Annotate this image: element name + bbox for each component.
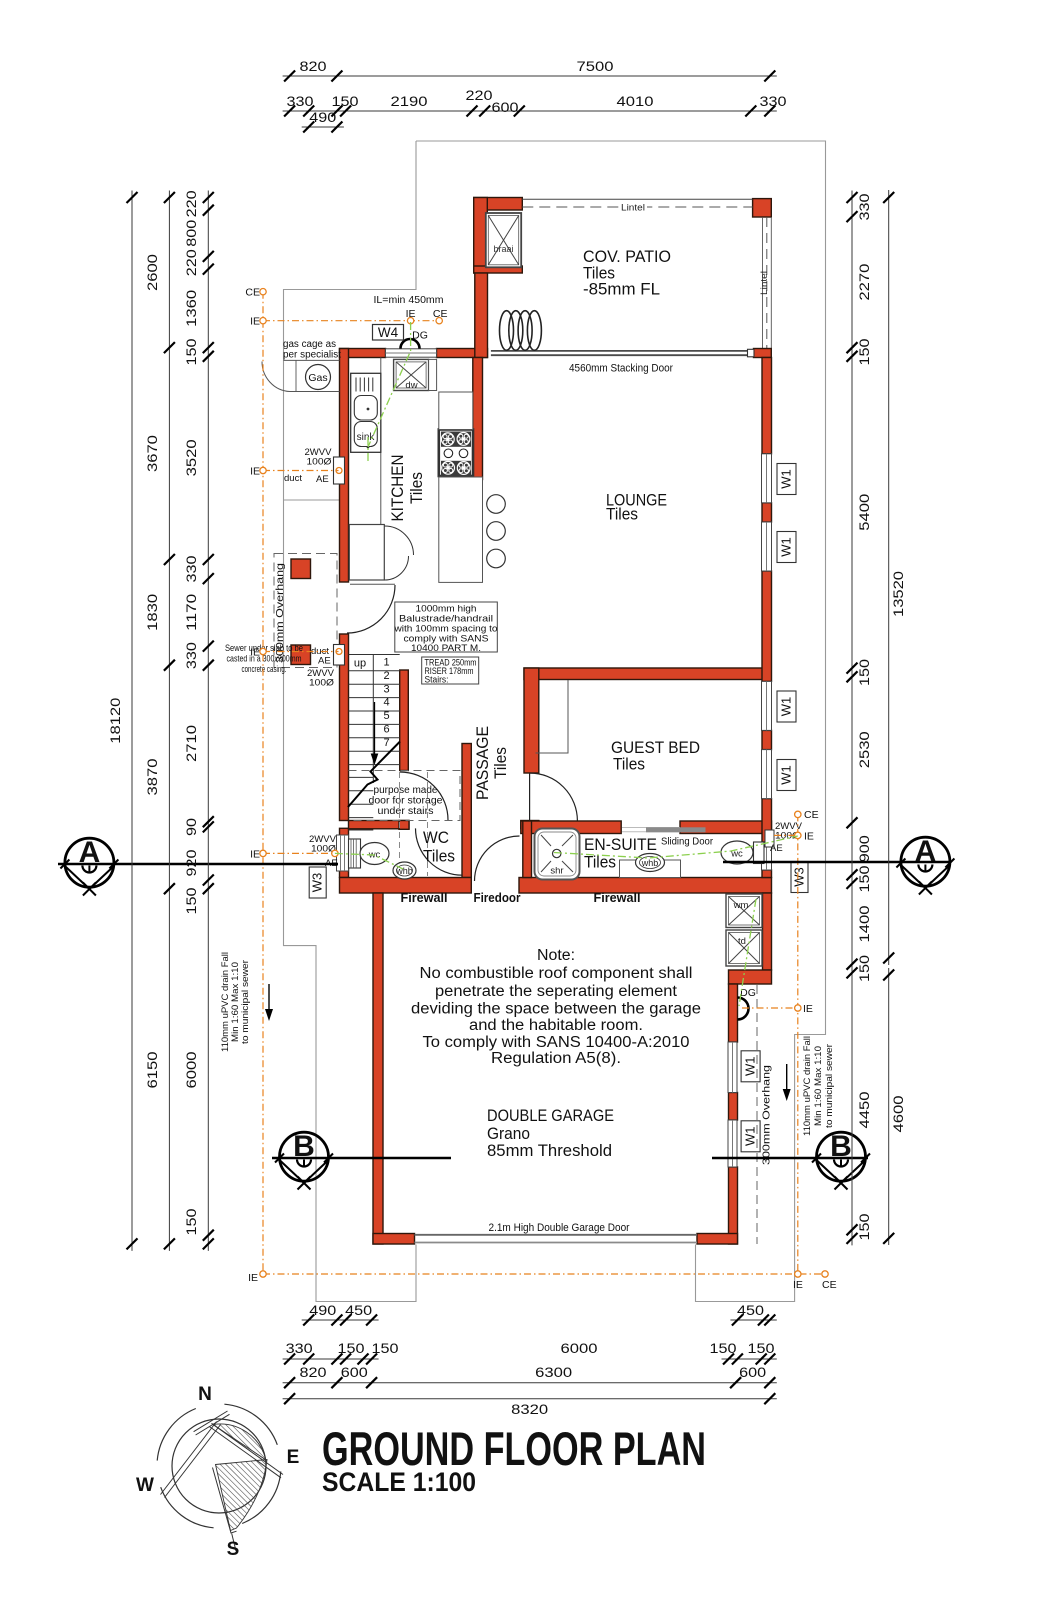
svg-text:100Ø: 100Ø [309,678,335,689]
svg-text:450: 450 [345,1303,372,1318]
svg-text:purpose made: purpose made [374,785,438,796]
svg-text:330: 330 [760,94,787,109]
svg-text:220: 220 [184,249,199,276]
svg-text:Stairs:: Stairs: [425,675,449,685]
svg-text:per specialist: per specialist [283,350,341,361]
svg-text:Regulation A5(8).: Regulation A5(8). [491,1050,621,1067]
svg-text:820: 820 [300,1365,327,1380]
svg-text:W1: W1 [743,1127,758,1147]
svg-text:2.1m High Double Garage Door: 2.1m High Double Garage Door [489,1222,630,1234]
svg-text:150: 150 [184,338,199,365]
svg-text:N: N [198,1384,212,1405]
svg-text:COV. PATIO: COV. PATIO [583,248,671,266]
svg-text:7500: 7500 [577,59,614,74]
svg-text:490: 490 [309,1303,336,1318]
svg-text:2: 2 [383,670,389,682]
svg-text:300mm Overhang: 300mm Overhang [761,1065,773,1165]
svg-text:whb: whb [641,858,659,868]
svg-text:braai: braai [493,244,513,254]
svg-text:150: 150 [372,1341,399,1356]
svg-text:Grano: Grano [487,1125,530,1143]
svg-text:Lintel: Lintel [621,203,645,214]
svg-text:Firewall: Firewall [401,891,448,905]
svg-text:6150: 6150 [145,1052,160,1089]
svg-text:Tiles: Tiles [408,472,426,504]
svg-text:Lintel: Lintel [759,271,769,295]
svg-text:WC: WC [423,829,449,847]
svg-text:1: 1 [383,657,389,669]
svg-text:150: 150 [184,888,199,915]
svg-text:B: B [293,1130,315,1163]
svg-text:Sliding Door: Sliding Door [661,836,713,848]
svg-text:Tiles: Tiles [613,756,645,774]
svg-text:IE: IE [250,647,260,659]
svg-text:3670: 3670 [145,435,160,472]
svg-text:CE: CE [804,809,819,821]
svg-text:IE: IE [250,316,260,328]
svg-text:600: 600 [739,1365,766,1380]
svg-text:330: 330 [184,556,199,583]
svg-text:td: td [738,936,746,947]
svg-text:IE: IE [793,1279,803,1291]
svg-text:W1: W1 [743,1057,758,1077]
svg-text:Tiles: Tiles [423,848,455,866]
svg-text:6000: 6000 [184,1052,199,1089]
svg-text:W3: W3 [310,873,325,893]
svg-text:920: 920 [184,850,199,877]
svg-text:90: 90 [184,818,199,836]
svg-text:gas cage as: gas cage as [283,339,336,350]
svg-text:150: 150 [857,955,872,982]
svg-text:18120: 18120 [108,698,123,744]
svg-text:GUEST BED: GUEST BED [611,739,700,757]
svg-text:3: 3 [383,683,389,695]
svg-text:AE: AE [316,474,329,485]
svg-text:4010: 4010 [617,94,654,109]
svg-text:2710: 2710 [184,725,199,762]
svg-text:-85mm FL: -85mm FL [583,281,660,299]
svg-text:150: 150 [857,866,872,893]
svg-text:450: 450 [737,1303,764,1318]
svg-text:3870: 3870 [145,758,160,795]
svg-text:7: 7 [383,737,389,749]
svg-text:W1: W1 [779,469,794,489]
svg-text:to municipal sewer: to municipal sewer [240,960,251,1044]
svg-text:1170: 1170 [184,594,199,631]
svg-text:to municipal sewer: to municipal sewer [824,1044,835,1128]
svg-text:CE: CE [822,1279,837,1291]
svg-text:Note:: Note: [537,947,575,964]
svg-text:up: up [354,658,366,670]
svg-text:820: 820 [300,59,327,74]
svg-text:5: 5 [383,710,389,722]
svg-text:AE: AE [318,656,331,667]
svg-text:under stairs: under stairs [378,806,434,817]
svg-text:330: 330 [857,194,872,221]
svg-text:Min 1:60 Max 1:10: Min 1:60 Max 1:10 [813,1046,824,1126]
svg-text:4: 4 [383,697,389,709]
svg-text:150: 150 [710,1341,737,1356]
svg-text:IE: IE [250,849,260,861]
svg-text:150: 150 [332,94,359,109]
svg-text:door for storage: door for storage [369,796,443,807]
svg-text:W1: W1 [779,697,794,717]
svg-text:2270: 2270 [857,264,872,301]
svg-text:No combustible roof component: No combustible roof component shall [420,965,693,982]
svg-text:1830: 1830 [145,594,160,631]
svg-text:W4: W4 [378,325,399,340]
svg-text:Firewall: Firewall [594,891,641,905]
svg-text:duct: duct [284,473,302,484]
svg-text:B: B [830,1130,852,1163]
svg-text:concrete casing.: concrete casing. [242,664,287,675]
svg-text:penetrate the seperating eleme: penetrate the seperating element [435,983,678,1000]
svg-text:10400 PART M.: 10400 PART M. [411,643,481,654]
svg-text:110mm uPVC drain Fall: 110mm uPVC drain Fall [802,1036,813,1136]
svg-text:330: 330 [286,1341,313,1356]
svg-text:1360: 1360 [184,290,199,327]
svg-text:shr: shr [550,866,563,877]
svg-text:150: 150 [857,659,872,686]
svg-text:IE: IE [406,308,416,320]
svg-text:4450: 4450 [857,1092,872,1129]
svg-text:800: 800 [184,220,199,247]
svg-text:5400: 5400 [857,494,872,531]
svg-text:330: 330 [184,642,199,669]
svg-text:Tiles: Tiles [606,506,638,524]
svg-text:A: A [79,836,101,869]
svg-text:490: 490 [309,110,336,125]
svg-text:4600: 4600 [891,1096,906,1133]
svg-text:IE: IE [803,1003,813,1015]
svg-text:W1: W1 [779,537,794,557]
svg-text:Tiles: Tiles [584,854,616,872]
svg-text:KITCHEN: KITCHEN [389,455,407,522]
svg-text:whb: whb [395,866,413,876]
svg-text:CE: CE [245,287,260,299]
svg-text:150: 150 [857,1214,872,1241]
svg-text:85mm Threshold: 85mm Threshold [487,1142,612,1160]
svg-text:Tiles: Tiles [492,747,510,779]
svg-text:W3: W3 [792,867,807,887]
svg-text:S: S [227,1539,240,1560]
svg-text:IE: IE [804,831,814,843]
svg-text:2600: 2600 [145,254,160,291]
svg-text:150: 150 [748,1341,775,1356]
svg-text:2530: 2530 [857,731,872,768]
svg-text:W1: W1 [779,765,794,785]
svg-text:A: A [915,835,937,868]
svg-text:Gas: Gas [308,372,327,384]
svg-text:150: 150 [857,339,872,366]
svg-text:100Ø: 100Ø [307,457,333,468]
svg-text:6000: 6000 [561,1341,598,1356]
svg-text:and the habitable room.: and the habitable room. [469,1017,643,1034]
svg-text:DG: DG [740,987,756,999]
svg-text:deviding the space between the: deviding the space between the garage [411,1001,701,1018]
svg-text:wm: wm [733,900,749,911]
svg-text:PASSAGE: PASSAGE [474,726,492,800]
svg-text:900: 900 [857,835,872,862]
svg-text:DG: DG [412,330,428,342]
svg-text:150: 150 [338,1341,365,1356]
svg-text:Firedoor: Firedoor [474,891,521,905]
svg-text:SCALE 1:100: SCALE 1:100 [322,1467,476,1497]
svg-text:dw: dw [405,380,417,391]
svg-text:AE: AE [770,843,783,854]
svg-text:CE: CE [433,308,448,320]
svg-text:DOUBLE GARAGE: DOUBLE GARAGE [487,1107,614,1125]
svg-text:220: 220 [184,190,199,217]
svg-text:To comply with SANS 10400-A:20: To comply with SANS 10400-A:2010 [423,1034,690,1051]
svg-text:E: E [287,1447,300,1468]
svg-text:220: 220 [466,88,493,103]
svg-text:1400: 1400 [857,906,872,943]
svg-text:4560mm Stacking Door: 4560mm Stacking Door [569,363,673,375]
svg-text:330: 330 [287,94,314,109]
svg-text:600: 600 [492,100,519,115]
svg-text:2190: 2190 [391,94,428,109]
svg-text:6300: 6300 [535,1365,572,1380]
svg-text:IL=min 450mm: IL=min 450mm [374,294,444,306]
svg-text:EN-SUITE: EN-SUITE [584,836,657,854]
svg-text:13520: 13520 [891,571,906,617]
svg-text:6: 6 [383,724,389,736]
svg-text:150: 150 [184,1209,199,1236]
svg-text:IE: IE [250,466,260,478]
svg-text:IE: IE [248,1272,258,1284]
svg-text:W: W [136,1475,154,1496]
svg-text:8320: 8320 [511,1402,548,1417]
svg-text:3520: 3520 [184,439,199,476]
svg-text:600: 600 [341,1365,368,1380]
